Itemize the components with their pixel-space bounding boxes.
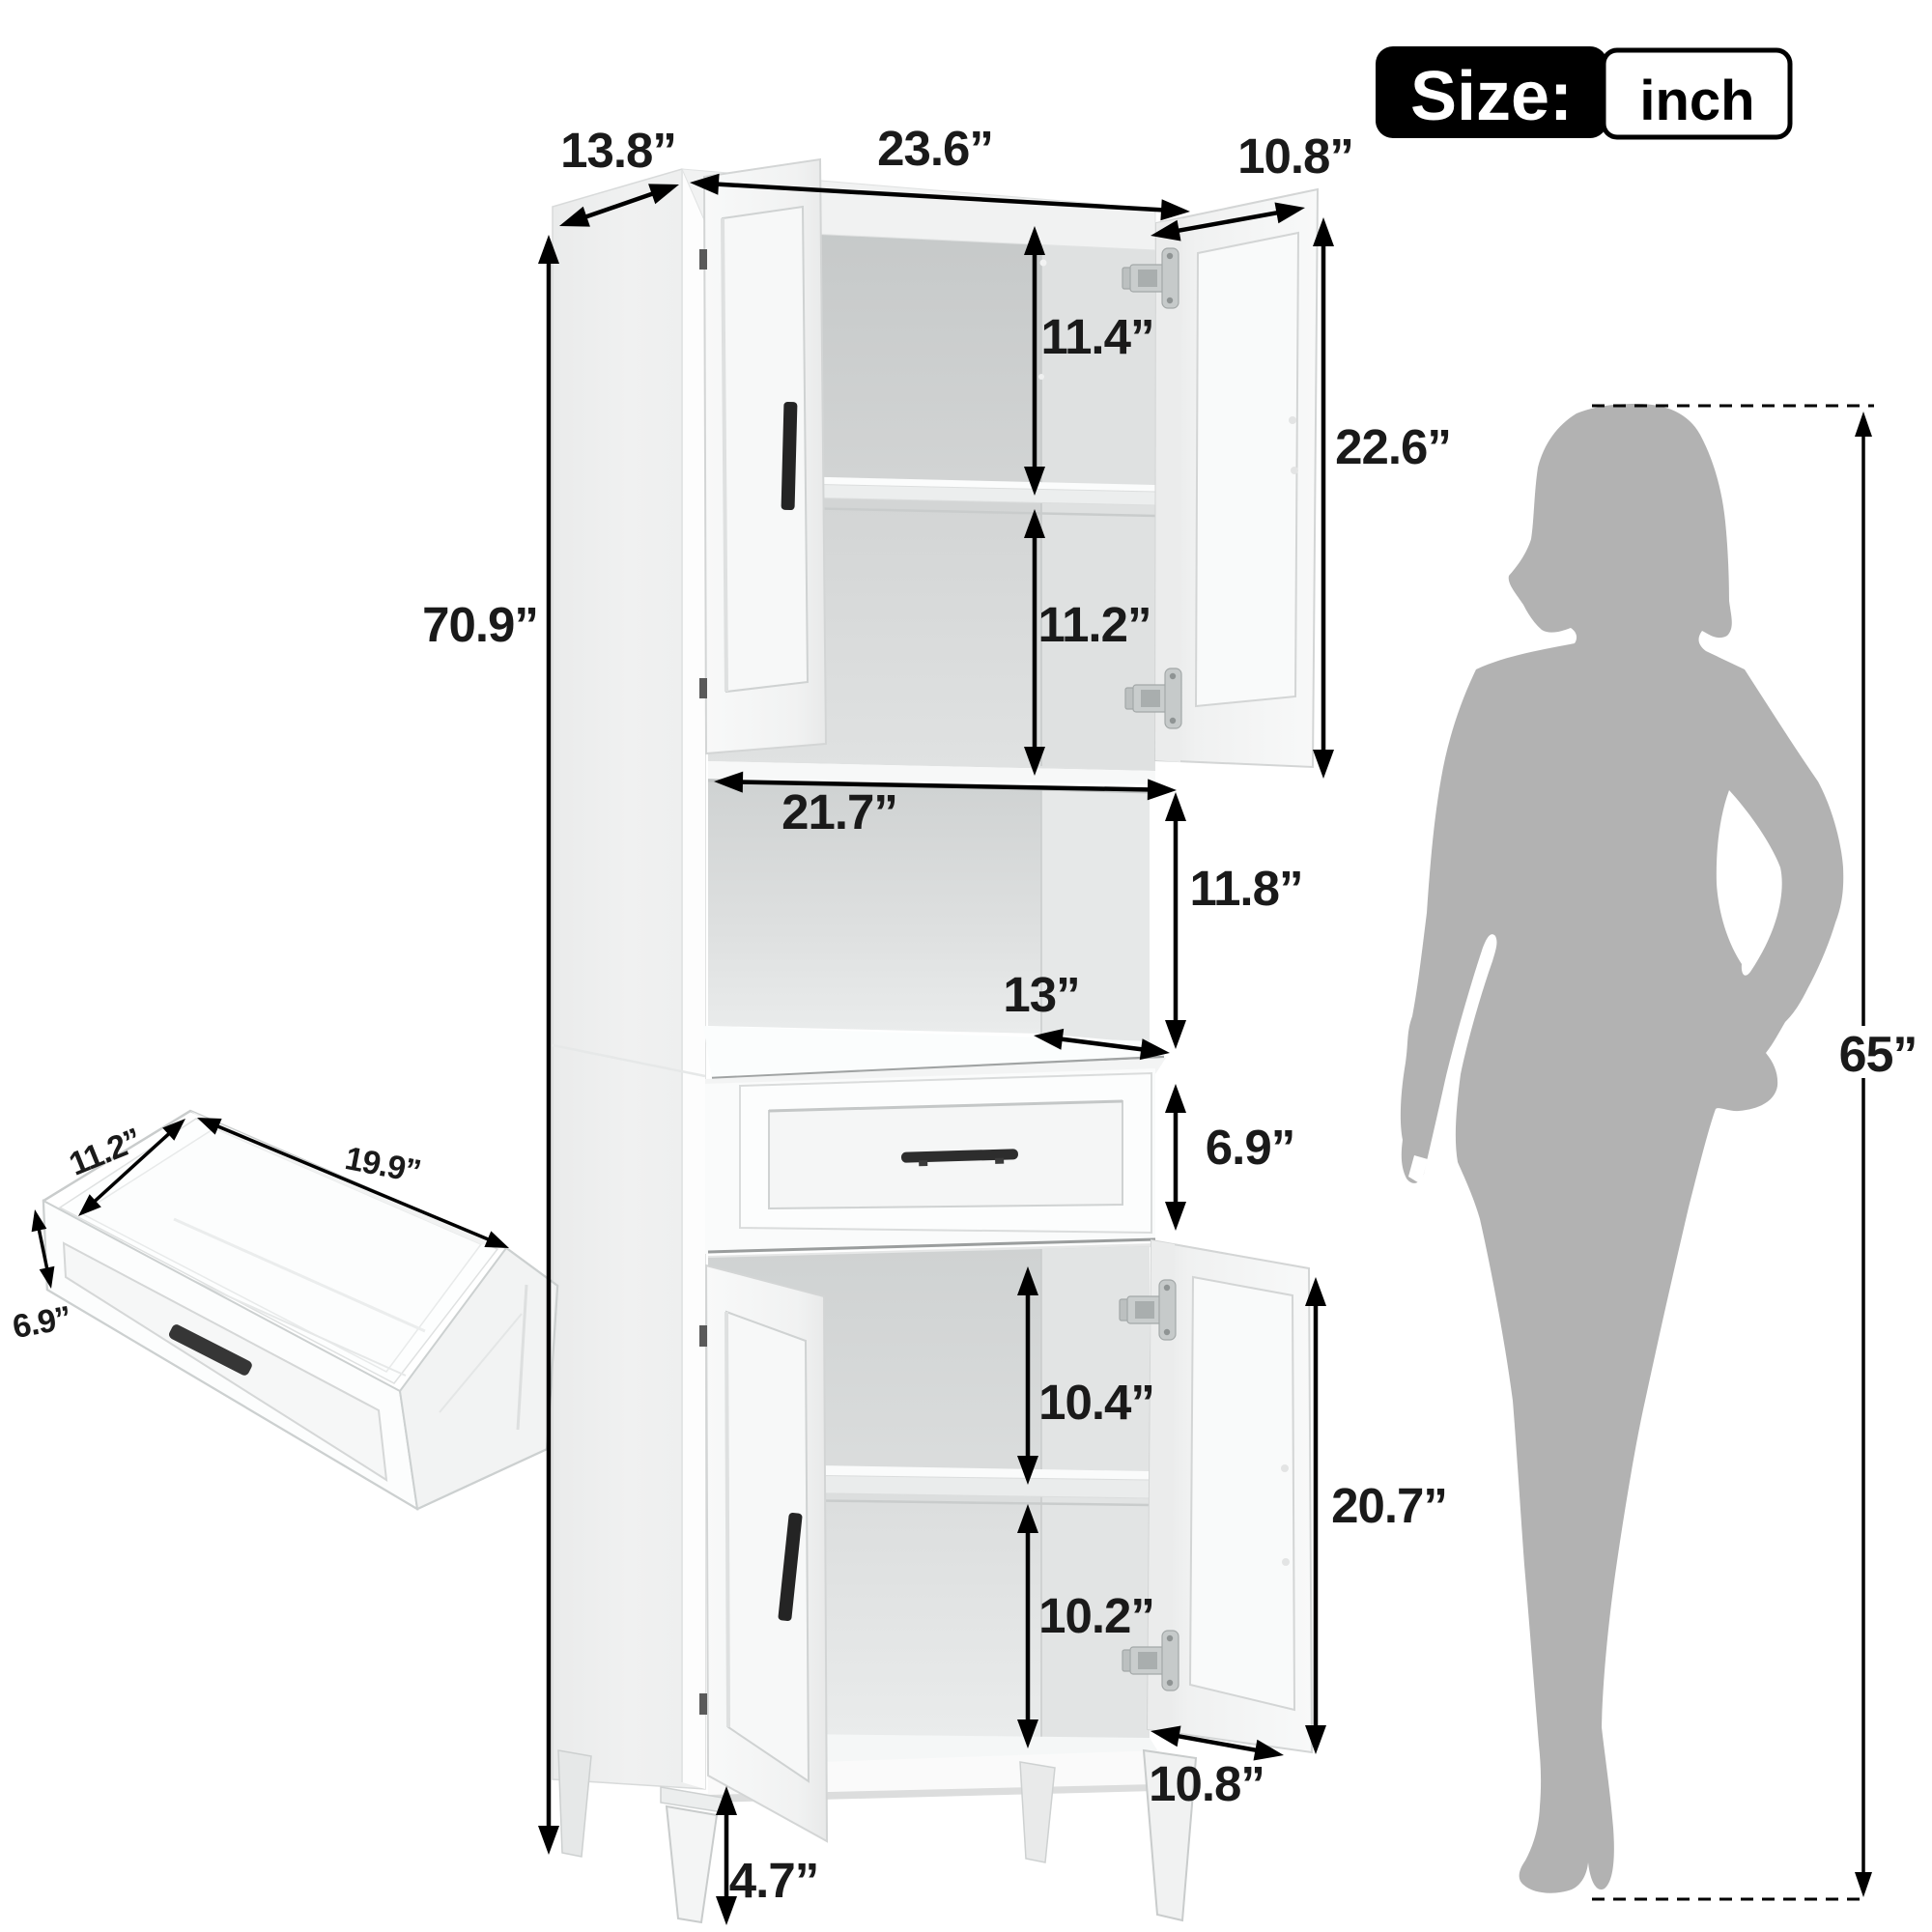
svg-text:21.7”: 21.7”: [781, 784, 897, 839]
svg-text:70.9”: 70.9”: [422, 597, 538, 652]
svg-text:13.8”: 13.8”: [560, 123, 676, 178]
svg-text:10.8”: 10.8”: [1149, 1756, 1264, 1811]
svg-text:11.2”: 11.2”: [1038, 597, 1151, 652]
svg-text:11.8”: 11.8”: [1190, 861, 1303, 916]
svg-text:4.7”: 4.7”: [729, 1853, 818, 1908]
svg-text:inch: inch: [1639, 70, 1754, 132]
svg-text:20.7”: 20.7”: [1331, 1478, 1447, 1533]
svg-text:65”: 65”: [1839, 1027, 1918, 1083]
svg-text:22.6”: 22.6”: [1335, 419, 1451, 474]
svg-text:10.8”: 10.8”: [1237, 128, 1353, 184]
svg-text:11.4”: 11.4”: [1041, 309, 1154, 364]
svg-text:10.4”: 10.4”: [1038, 1375, 1154, 1430]
svg-text:6.9”: 6.9”: [1206, 1120, 1294, 1175]
svg-text:13”: 13”: [1003, 967, 1079, 1022]
svg-text:23.6”: 23.6”: [877, 121, 993, 176]
svg-text:Size:: Size:: [1410, 58, 1573, 135]
svg-text:10.2”: 10.2”: [1038, 1588, 1154, 1643]
